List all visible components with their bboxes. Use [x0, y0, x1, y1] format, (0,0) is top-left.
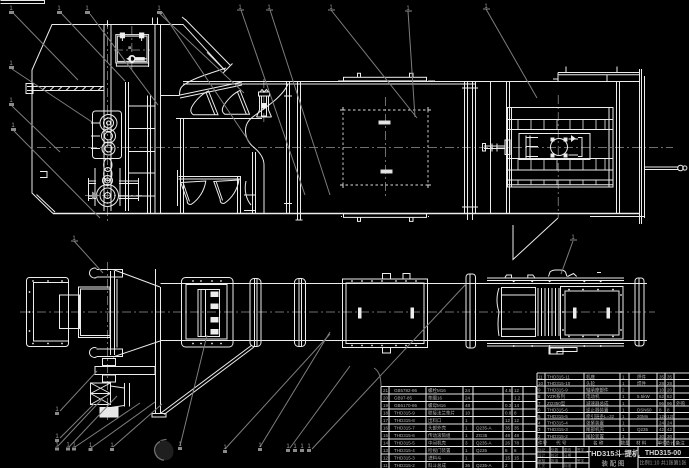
svg-text:48: 48	[465, 403, 471, 408]
svg-text:料斗总成: 料斗总成	[428, 462, 446, 468]
svg-text:17: 17	[383, 418, 389, 423]
svg-text:审核: 审核	[538, 458, 546, 463]
svg-text:THD315-3: THD315-3	[394, 456, 415, 461]
svg-text:轴承座部件: 轴承座部件	[586, 387, 609, 394]
svg-text:牵引链条L=32: 牵引链条L=32	[586, 413, 615, 420]
svg-text:备注: 备注	[676, 440, 686, 447]
svg-text:Q235-A: Q235-A	[476, 463, 492, 468]
svg-text:THD315斗-提机: THD315斗-提机	[587, 448, 640, 458]
svg-text:4.5: 4.5	[505, 388, 512, 393]
svg-text:14: 14	[383, 441, 389, 446]
svg-text:96: 96	[667, 401, 673, 406]
svg-text:THD315-5: THD315-5	[394, 441, 415, 446]
svg-text:12: 12	[383, 456, 389, 461]
svg-text:24: 24	[465, 388, 471, 393]
svg-text:0.8: 0.8	[505, 411, 512, 416]
svg-text:THD315-6: THD315-6	[547, 407, 568, 412]
svg-text:Q235-A: Q235-A	[476, 441, 492, 446]
svg-text:THD315-5: THD315-5	[547, 414, 568, 419]
svg-text:62: 62	[659, 394, 665, 399]
svg-text:26: 26	[505, 441, 511, 446]
svg-text:42: 42	[667, 427, 673, 432]
svg-text:14: 14	[514, 403, 520, 408]
svg-text:校对: 校对	[551, 452, 559, 457]
svg-text:头轮: 头轮	[586, 380, 595, 387]
svg-text:尾轮装置: 尾轮装置	[586, 433, 604, 440]
svg-text:15: 15	[383, 433, 389, 438]
svg-text:工艺: 工艺	[538, 463, 546, 468]
svg-text:张紧装置: 张紧装置	[586, 420, 604, 427]
svg-text:11: 11	[538, 375, 543, 380]
svg-text:30: 30	[667, 434, 673, 439]
svg-text:120: 120	[667, 414, 675, 419]
svg-text:标准: 标准	[564, 463, 572, 468]
svg-text:THD315-6: THD315-6	[394, 433, 415, 438]
svg-text:THD315-11: THD315-11	[547, 375, 570, 380]
svg-text:42: 42	[659, 427, 665, 432]
svg-text:YZR系列: YZR系列	[547, 393, 565, 400]
svg-text:12: 12	[505, 418, 511, 423]
svg-text:11: 11	[383, 463, 388, 468]
svg-text:20: 20	[667, 388, 673, 393]
svg-text:减速器总成: 减速器总成	[586, 400, 609, 407]
svg-text:10: 10	[538, 381, 544, 386]
svg-text:THD315-9: THD315-9	[547, 388, 568, 393]
svg-text:13: 13	[383, 448, 389, 453]
svg-text:THD315-2: THD315-2	[394, 463, 415, 468]
svg-text:设计: 设计	[538, 452, 546, 457]
svg-text:THD315-4: THD315-4	[547, 421, 568, 426]
svg-text:THD315-10: THD315-10	[547, 381, 571, 386]
svg-text:总计: 总计	[666, 440, 676, 447]
svg-text:GB97-85: GB97-85	[394, 396, 413, 401]
svg-text:Q235-A: Q235-A	[476, 426, 492, 431]
svg-text:标记: 标记	[538, 447, 546, 452]
svg-text:装 配 图: 装 配 图	[601, 459, 624, 468]
svg-text:12: 12	[514, 418, 520, 423]
svg-text:15: 15	[514, 456, 520, 461]
svg-text:材 料: 材 料	[636, 440, 647, 447]
svg-text:名 称: 名 称	[593, 440, 604, 447]
svg-text:20: 20	[383, 396, 389, 401]
svg-text:5.5kW: 5.5kW	[637, 394, 651, 399]
svg-text:15: 15	[505, 456, 511, 461]
svg-text:GB5782-86: GB5782-86	[394, 388, 418, 393]
svg-text:36: 36	[465, 463, 471, 468]
svg-text:传动滚筒组: 传动滚筒组	[428, 432, 451, 439]
svg-text:Q235: Q235	[476, 448, 488, 453]
svg-text:35: 35	[667, 375, 673, 380]
svg-text:48: 48	[505, 433, 511, 438]
svg-text:THD315-8: THD315-8	[394, 418, 415, 423]
svg-text:ZG35: ZG35	[476, 433, 488, 438]
svg-text:THD315-7: THD315-7	[394, 426, 415, 431]
svg-text:12: 12	[514, 388, 520, 393]
svg-text:120: 120	[659, 414, 667, 419]
svg-text:GB6170-86: GB6170-86	[394, 403, 418, 408]
svg-text:电动机: 电动机	[586, 393, 600, 400]
svg-text:Q235: Q235	[637, 427, 649, 432]
svg-text:比例1:10 共1张第1张: 比例1:10 共1张第1张	[640, 460, 687, 467]
svg-text:35: 35	[659, 375, 665, 380]
svg-text:外购: 外购	[676, 400, 685, 407]
svg-text:进料斗: 进料斗	[428, 455, 442, 462]
svg-text:逆止器装置: 逆止器装置	[586, 406, 609, 413]
svg-text:62: 62	[667, 394, 673, 399]
svg-text:THD315-9: THD315-9	[394, 411, 415, 416]
svg-text:1.2: 1.2	[514, 396, 521, 401]
svg-text:代 号: 代 号	[556, 440, 567, 447]
svg-text:21: 21	[383, 388, 389, 393]
svg-text:20Mn: 20Mn	[637, 414, 649, 419]
svg-text:10: 10	[465, 411, 471, 416]
svg-text:螺栓M16: 螺栓M16	[428, 387, 446, 394]
svg-text:头部外壳: 头部外壳	[428, 425, 446, 432]
svg-text:检视门装置: 检视门装置	[428, 447, 451, 454]
svg-text:DSN60: DSN60	[637, 407, 652, 412]
svg-text:螺母M16: 螺母M16	[428, 402, 446, 409]
svg-text:10: 10	[659, 388, 665, 393]
svg-text:18: 18	[383, 411, 389, 416]
svg-text:28: 28	[659, 381, 665, 386]
svg-text:处数: 处数	[551, 447, 559, 452]
svg-text:尾部机壳: 尾部机壳	[586, 426, 604, 433]
svg-text:更改: 更改	[564, 447, 572, 452]
svg-text:日期: 日期	[564, 452, 572, 457]
svg-text:出料口: 出料口	[428, 417, 442, 424]
svg-text:签字: 签字	[577, 458, 585, 463]
svg-text:批准: 批准	[551, 458, 559, 463]
svg-text:96: 96	[659, 401, 665, 406]
svg-text:0.3: 0.3	[505, 403, 512, 408]
svg-text:焊件: 焊件	[637, 374, 646, 381]
svg-text:48: 48	[514, 433, 520, 438]
svg-text:THD315-2: THD315-2	[547, 434, 568, 439]
svg-text:24: 24	[659, 421, 665, 426]
svg-text:35: 35	[514, 426, 520, 431]
svg-text:24: 24	[667, 421, 673, 426]
svg-text:焊件: 焊件	[637, 380, 646, 387]
svg-text:THD315-00: THD315-00	[645, 450, 681, 457]
svg-text:16: 16	[383, 426, 389, 431]
svg-text:30: 30	[659, 434, 665, 439]
svg-text:机座: 机座	[586, 374, 595, 381]
svg-text:中间机壳: 中间机壳	[428, 440, 446, 447]
svg-text:数量: 数量	[621, 440, 631, 447]
svg-text:78: 78	[514, 441, 520, 446]
svg-text:THD315-4: THD315-4	[394, 448, 415, 453]
svg-text:垫圈16: 垫圈16	[428, 395, 443, 402]
svg-text:THD315-3: THD315-3	[547, 427, 568, 432]
svg-text:35: 35	[505, 426, 511, 431]
svg-text:24: 24	[465, 396, 471, 401]
svg-text:件号: 件号	[538, 440, 548, 447]
svg-text:联接法兰垫片: 联接法兰垫片	[428, 410, 455, 417]
svg-text:28: 28	[667, 381, 673, 386]
svg-text:签字: 签字	[577, 447, 585, 452]
svg-text:19: 19	[383, 403, 389, 408]
svg-text:ZQ350型: ZQ350型	[547, 400, 566, 406]
